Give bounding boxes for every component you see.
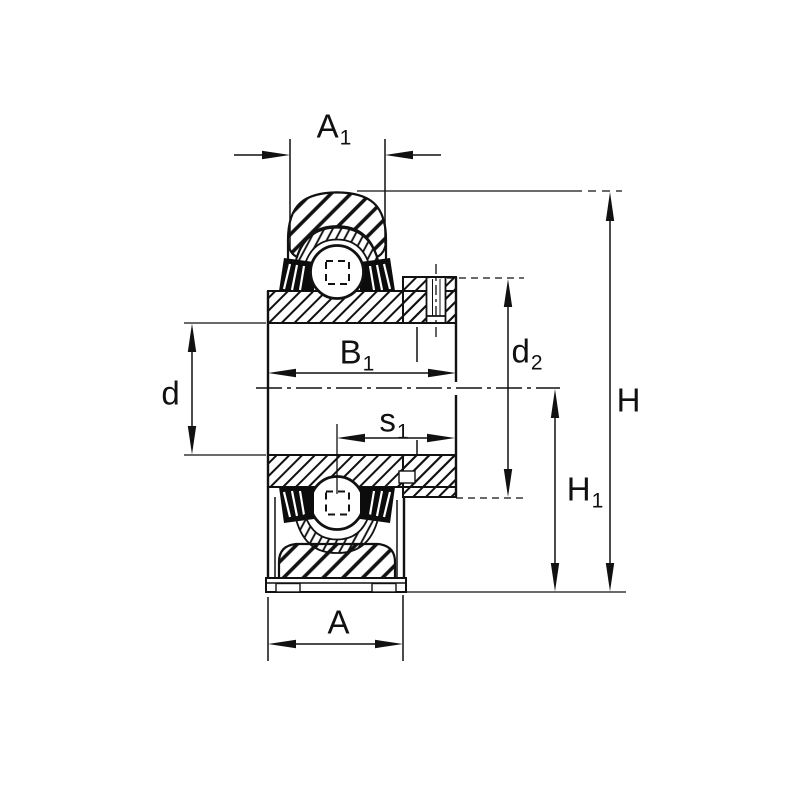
- dim-label-d2: d 2: [511, 335, 542, 368]
- upper-bearing-section: [268, 192, 456, 338]
- dim-a1-subscript: 1: [340, 128, 352, 149]
- arrowhead: [262, 151, 290, 159]
- dim-b1-symbol: B: [340, 336, 362, 369]
- dim-s1-symbol: s: [379, 404, 396, 437]
- dim-d2-symbol: d: [511, 335, 529, 368]
- dim-s1-subscript: 1: [397, 422, 409, 443]
- arrowhead: [188, 426, 196, 455]
- dim-label-a1: A 1: [317, 110, 352, 143]
- arrowhead: [428, 369, 456, 377]
- dim-h-symbol: H: [617, 384, 641, 417]
- base-foot-left: [276, 584, 300, 593]
- dim-a-symbol: A: [327, 606, 349, 639]
- dim-label-s1: s 1: [379, 404, 408, 437]
- upper-ball: [311, 246, 364, 299]
- arrowhead: [504, 469, 512, 497]
- dim-d-symbol: d: [161, 377, 179, 410]
- bearing-unit-drawing: A 1 B 1 d s 1 d 2 H H 1 A: [0, 0, 800, 800]
- arrowhead: [337, 434, 365, 442]
- arrowhead: [606, 563, 614, 592]
- arrowhead: [551, 389, 559, 418]
- dim-a1-symbol: A: [317, 110, 339, 143]
- dim-h1-symbol: H: [567, 473, 591, 506]
- bearing-drawing-svg: [0, 0, 800, 800]
- base-foot-right: [372, 584, 396, 593]
- dim-label-a: A: [327, 606, 350, 639]
- arrowhead: [427, 434, 455, 442]
- dim-b1-subscript: 1: [363, 354, 375, 375]
- arrowhead: [606, 192, 614, 221]
- arrowhead: [268, 369, 296, 377]
- dim-h1: [551, 389, 559, 592]
- dim-label-d: d: [161, 377, 180, 410]
- arrowhead: [504, 279, 512, 307]
- dim-label-h1: H 1: [567, 473, 604, 506]
- dim-d: [184, 323, 266, 455]
- dim-label-h: H: [617, 384, 642, 417]
- arrowhead: [188, 324, 196, 353]
- collar-notch: [399, 471, 415, 483]
- arrowhead: [375, 640, 403, 648]
- arrowhead: [551, 563, 559, 592]
- dim-h1-subscript: 1: [592, 491, 604, 512]
- arrowhead: [385, 151, 413, 159]
- lower-bearing-section: [266, 455, 456, 592]
- dim-label-b1: B 1: [340, 336, 375, 369]
- arrowhead: [268, 640, 296, 648]
- dim-d2-subscript: 2: [531, 353, 543, 374]
